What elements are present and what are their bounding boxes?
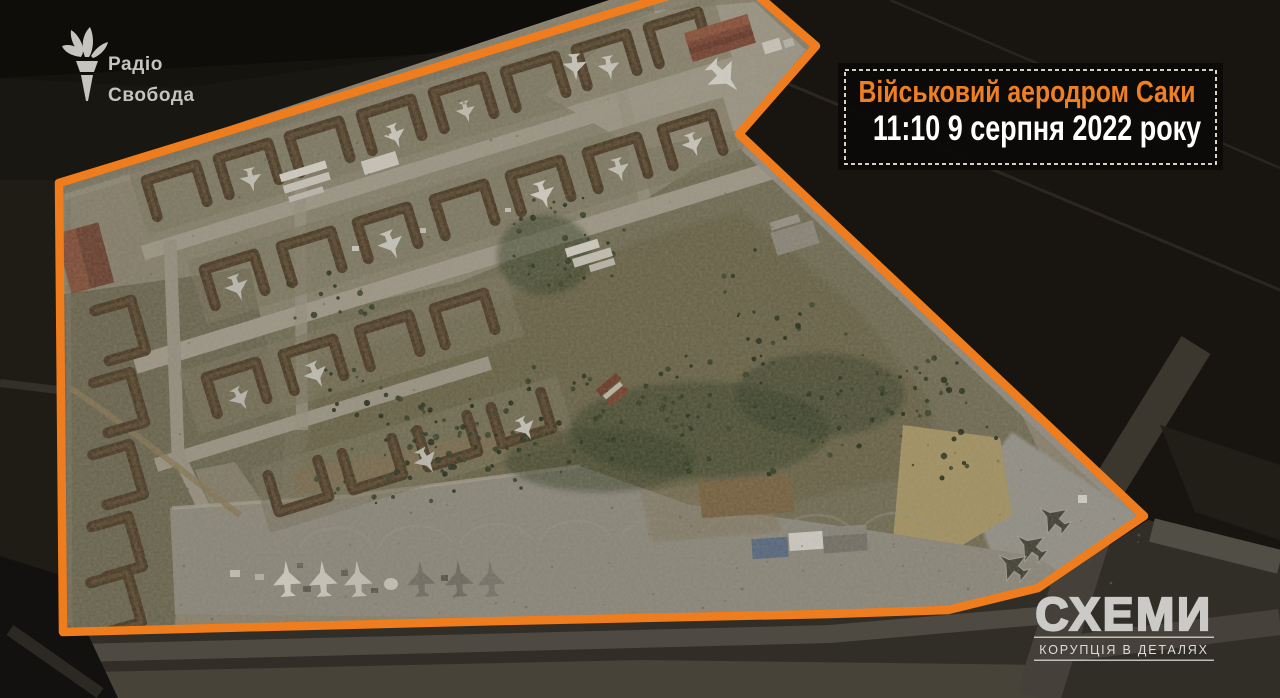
svg-text:Свобода: Свобода [108, 85, 195, 106]
svg-text:Радіо: Радіо [108, 54, 163, 75]
svg-text:СХЕМИ: СХЕМИ [1035, 588, 1212, 640]
svg-text:11:10 9 серпня 2022 року: 11:10 9 серпня 2022 року [873, 109, 1202, 148]
svg-text:Військовий аеродром Саки: Військовий аеродром Саки [858, 74, 1195, 108]
svg-text:КОРУПЦІЯ В ДЕТАЛЯХ: КОРУПЦІЯ В ДЕТАЛЯХ [1039, 643, 1209, 657]
